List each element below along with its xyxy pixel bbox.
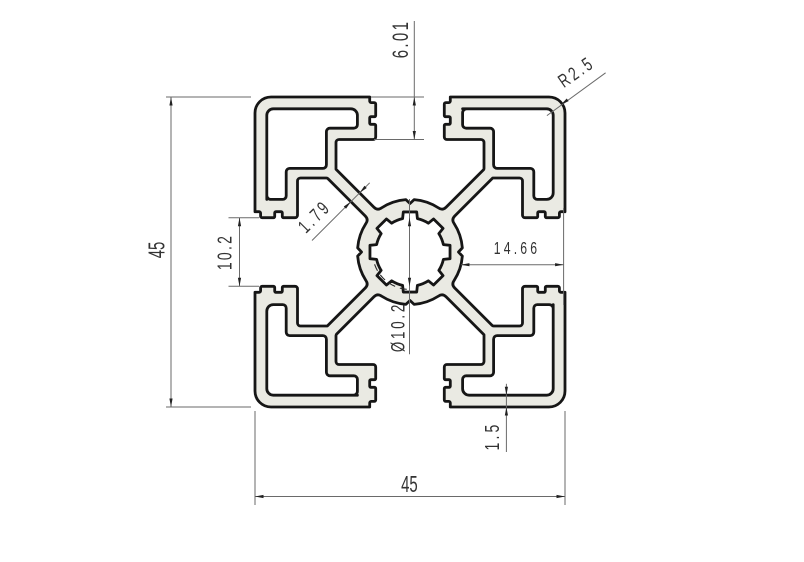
svg-text:45: 45 bbox=[401, 472, 418, 498]
svg-text:10.2: 10.2 bbox=[213, 234, 236, 270]
svg-text:45: 45 bbox=[144, 242, 170, 259]
svg-text:6.01: 6.01 bbox=[388, 20, 413, 59]
svg-text:1.5: 1.5 bbox=[480, 422, 503, 451]
svg-text:Ø10.2: Ø10.2 bbox=[388, 302, 409, 352]
svg-text:14.66: 14.66 bbox=[494, 239, 540, 259]
